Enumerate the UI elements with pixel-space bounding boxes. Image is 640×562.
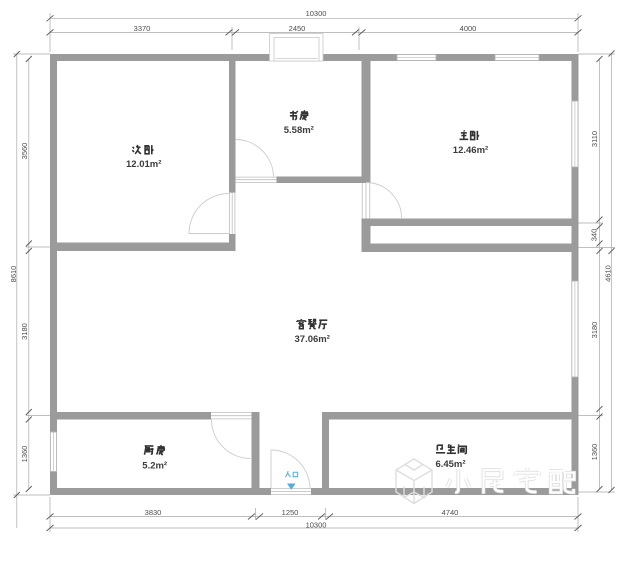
svg-text:3110: 3110 (590, 131, 599, 147)
svg-text:4000: 4000 (460, 24, 477, 33)
svg-text:4740: 4740 (442, 508, 459, 517)
svg-text:10300: 10300 (306, 9, 327, 18)
svg-text:1360: 1360 (590, 444, 599, 461)
svg-text:1360: 1360 (20, 446, 29, 463)
svg-text:1250: 1250 (282, 508, 299, 517)
svg-text:3180: 3180 (590, 322, 599, 339)
svg-text:5.58m²: 5.58m² (284, 125, 314, 136)
svg-text:8610: 8610 (9, 266, 18, 283)
svg-text:3830: 3830 (145, 508, 162, 517)
svg-text:12.46m²: 12.46m² (453, 145, 488, 156)
svg-text:12.01m²: 12.01m² (126, 159, 161, 170)
svg-text:5.2m²: 5.2m² (142, 461, 167, 472)
svg-text:37.06m²: 37.06m² (295, 334, 330, 345)
svg-text:10300: 10300 (306, 520, 327, 529)
svg-text:3560: 3560 (20, 143, 29, 160)
svg-text:3180: 3180 (20, 323, 29, 340)
svg-text:340: 340 (590, 229, 599, 242)
svg-text:6.45m²: 6.45m² (435, 459, 465, 470)
svg-text:3370: 3370 (134, 24, 151, 33)
svg-text:2450: 2450 (289, 24, 306, 33)
svg-text:4610: 4610 (604, 265, 613, 282)
